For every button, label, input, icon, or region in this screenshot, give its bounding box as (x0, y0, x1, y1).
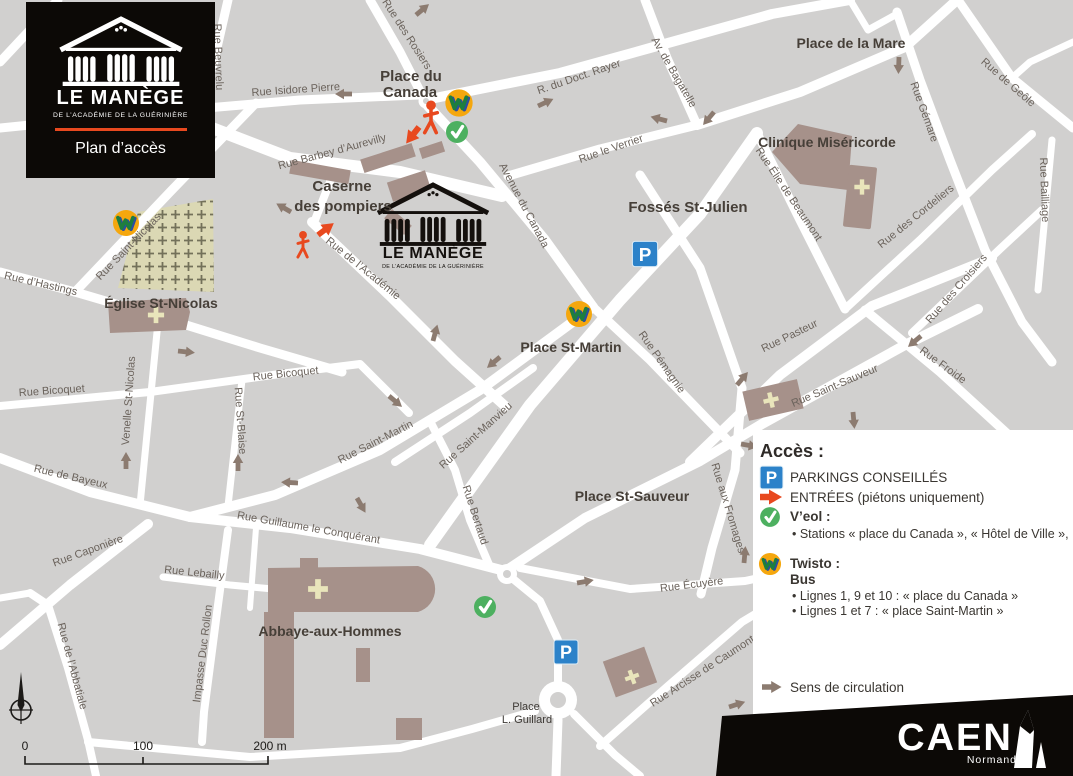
scale-two-hundred: 200 m (253, 739, 286, 753)
caen-city-label: CAEN (897, 717, 1013, 759)
legend-twisto-line2: • Lignes 1 et 7 : « place Saint-Martin » (792, 604, 1003, 618)
legend-parking-label: PARKINGS CONSEILLÉS (790, 470, 947, 485)
place-label: Place St-Sauveur (575, 488, 690, 504)
street-label: Rue Bailliage (1037, 157, 1051, 222)
legend-veol-line: • Stations « place du Canada », « Hôtel … (792, 527, 1069, 541)
place-label: Canada (383, 84, 438, 101)
parking-icon (632, 241, 657, 266)
scale-hundred: 100 (133, 739, 153, 753)
place-label: Place St-Martin (520, 339, 621, 355)
place-label: des pompiers (294, 198, 392, 215)
logo-title: LE MANÈGE (57, 87, 185, 110)
legend-panel: Accès : PARKINGS CONSEILLÉS ENTRÉES (pié… (753, 430, 1073, 718)
legend-twisto-title: Twisto : (790, 556, 840, 571)
veol-icon (760, 507, 780, 527)
legend-twisto-sub: Bus (790, 572, 816, 587)
parking-icon (554, 640, 578, 664)
twisto-icon (113, 210, 139, 236)
legend-twisto-line1: • Lignes 1, 9 et 10 : « place du Canada … (792, 589, 1018, 603)
place-label: Fossés St-Julien (628, 199, 747, 216)
legend-entrances-label: ENTRÉES (piétons uniquement) (790, 490, 984, 505)
place-label: Clinique Miséricorde (758, 134, 896, 150)
legend-veol-title: V’eol : (790, 509, 831, 524)
logo-divider (55, 128, 187, 131)
place-label: Place de la Mare (797, 35, 906, 51)
manege-map-logo-title: LE MANÈGE (383, 243, 484, 262)
legend-direction-label: Sens de circulation (790, 680, 904, 695)
manege-logo-box: LE MANÈGE DE L’ACADÉMIE DE LA GUÉRINIÈRE… (26, 2, 215, 178)
place-label: L. Guillard (502, 714, 552, 726)
veol-icon (446, 121, 468, 143)
scale-zero: 0 (22, 739, 29, 753)
place-label: Abbaye-aux-Hommes (258, 623, 401, 639)
access-map-page: P (0, 0, 1073, 776)
logo-subtitle: DE L’ACADÉMIE DE LA GUÉRINIÈRE (53, 112, 188, 119)
place-label: Caserne (312, 178, 371, 195)
legend-title: Accès : (760, 441, 824, 461)
place-label: Église St-Nicolas (104, 295, 218, 311)
twisto-icon (445, 89, 472, 116)
parking-icon (760, 466, 783, 489)
manege-map-logo-subtitle: DE L’ACADÉMIE DE LA GUÉRINIÈRE (382, 263, 484, 270)
twisto-icon (566, 301, 592, 327)
access-plan-label: Plan d’accès (75, 140, 166, 158)
veol-icon (474, 596, 496, 618)
twisto-icon (759, 553, 781, 575)
place-label: Place (512, 701, 540, 713)
place-label: Place du (380, 68, 442, 85)
manege-building-icon (51, 16, 191, 86)
